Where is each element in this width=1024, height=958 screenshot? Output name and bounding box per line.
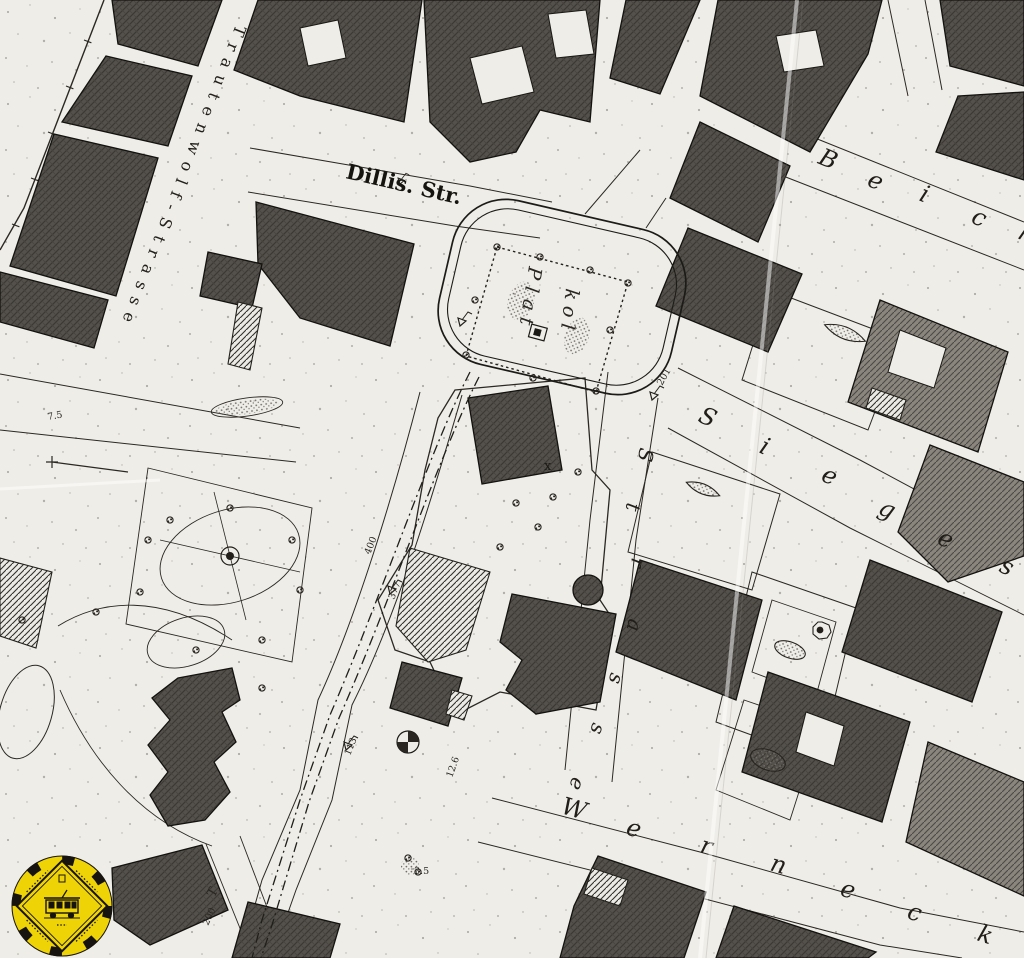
- x-mark: x: [544, 459, 552, 474]
- survey-number: 3.5: [414, 866, 429, 877]
- scanned-map-page: Dillis. Str. Trautenwolf-Strasse Plat ko…: [0, 0, 1024, 958]
- map-canvas: Dillis. Str. Trautenwolf-Strasse Plat ko…: [0, 0, 1024, 958]
- tram-museum-seal: [12, 856, 112, 956]
- wheel-symbol: [397, 731, 419, 753]
